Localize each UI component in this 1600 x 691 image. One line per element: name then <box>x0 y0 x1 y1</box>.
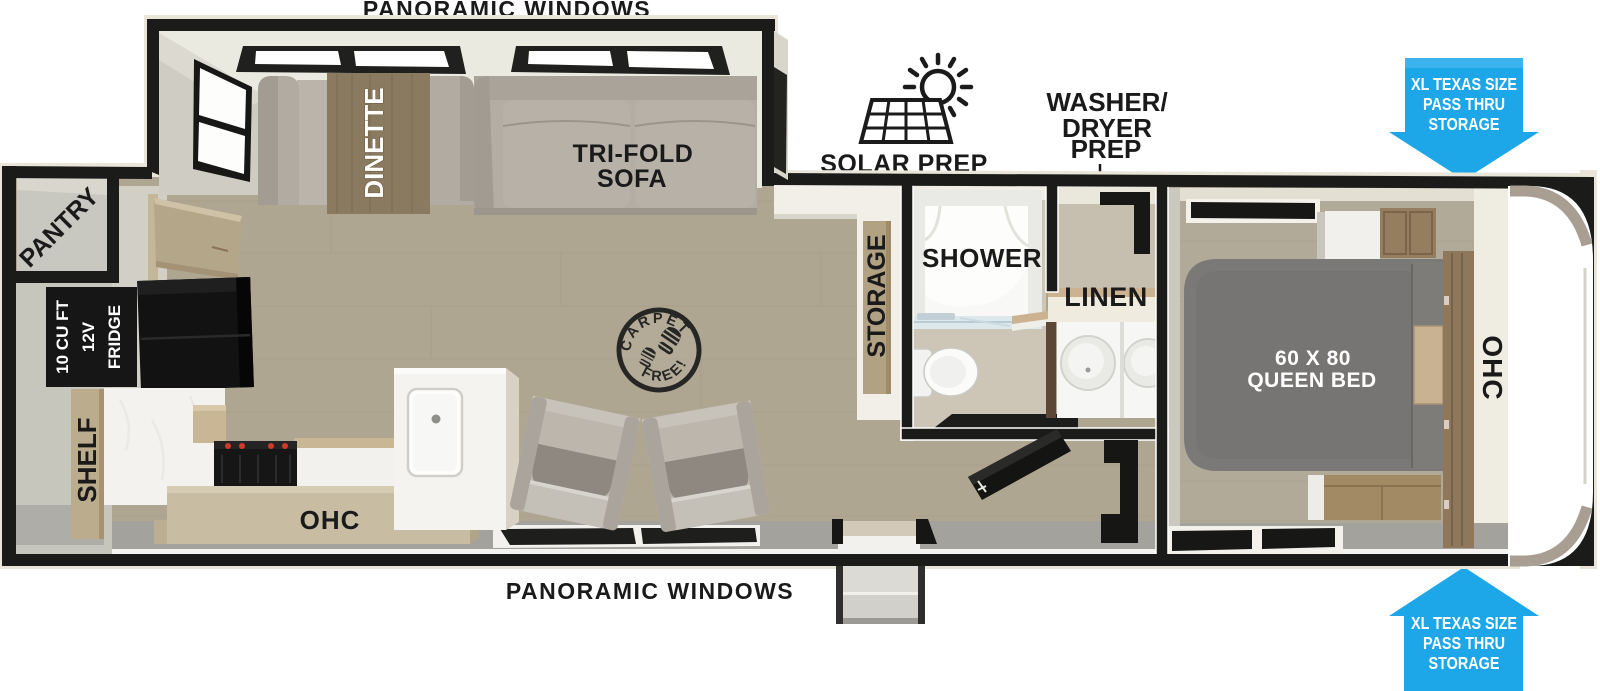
svg-text:PASS THRU: PASS THRU <box>1423 634 1505 654</box>
svg-text:SOFA: SOFA <box>597 165 667 193</box>
svg-text:12V: 12V <box>79 321 98 352</box>
svg-text:DINETTE: DINETTE <box>359 87 389 198</box>
svg-text:STORAGE: STORAGE <box>863 234 891 357</box>
svg-text:60 X 80: 60 X 80 <box>1275 347 1351 370</box>
svg-text:OHC: OHC <box>1477 335 1508 400</box>
svg-text:PREP: PREP <box>1071 134 1142 164</box>
svg-text:PASS THRU: PASS THRU <box>1423 95 1505 115</box>
svg-text:LINEN: LINEN <box>1064 282 1148 312</box>
svg-text:STORAGE: STORAGE <box>1429 115 1500 135</box>
svg-text:SHELF: SHELF <box>72 417 102 502</box>
svg-text:XL TEXAS SIZE: XL TEXAS SIZE <box>1411 614 1517 634</box>
svg-text:PANORAMIC WINDOWS: PANORAMIC WINDOWS <box>506 578 794 604</box>
svg-text:FRIDGE: FRIDGE <box>105 305 124 369</box>
svg-text:TRI-FOLD: TRI-FOLD <box>573 140 694 168</box>
svg-text:STORAGE: STORAGE <box>1429 654 1500 674</box>
svg-text:QUEEN BED: QUEEN BED <box>1247 369 1376 392</box>
svg-text:10 CU FT: 10 CU FT <box>53 300 72 374</box>
svg-text:OHC: OHC <box>300 505 361 535</box>
svg-text:SHOWER: SHOWER <box>922 243 1042 273</box>
svg-text:XL TEXAS SIZE: XL TEXAS SIZE <box>1411 75 1517 95</box>
